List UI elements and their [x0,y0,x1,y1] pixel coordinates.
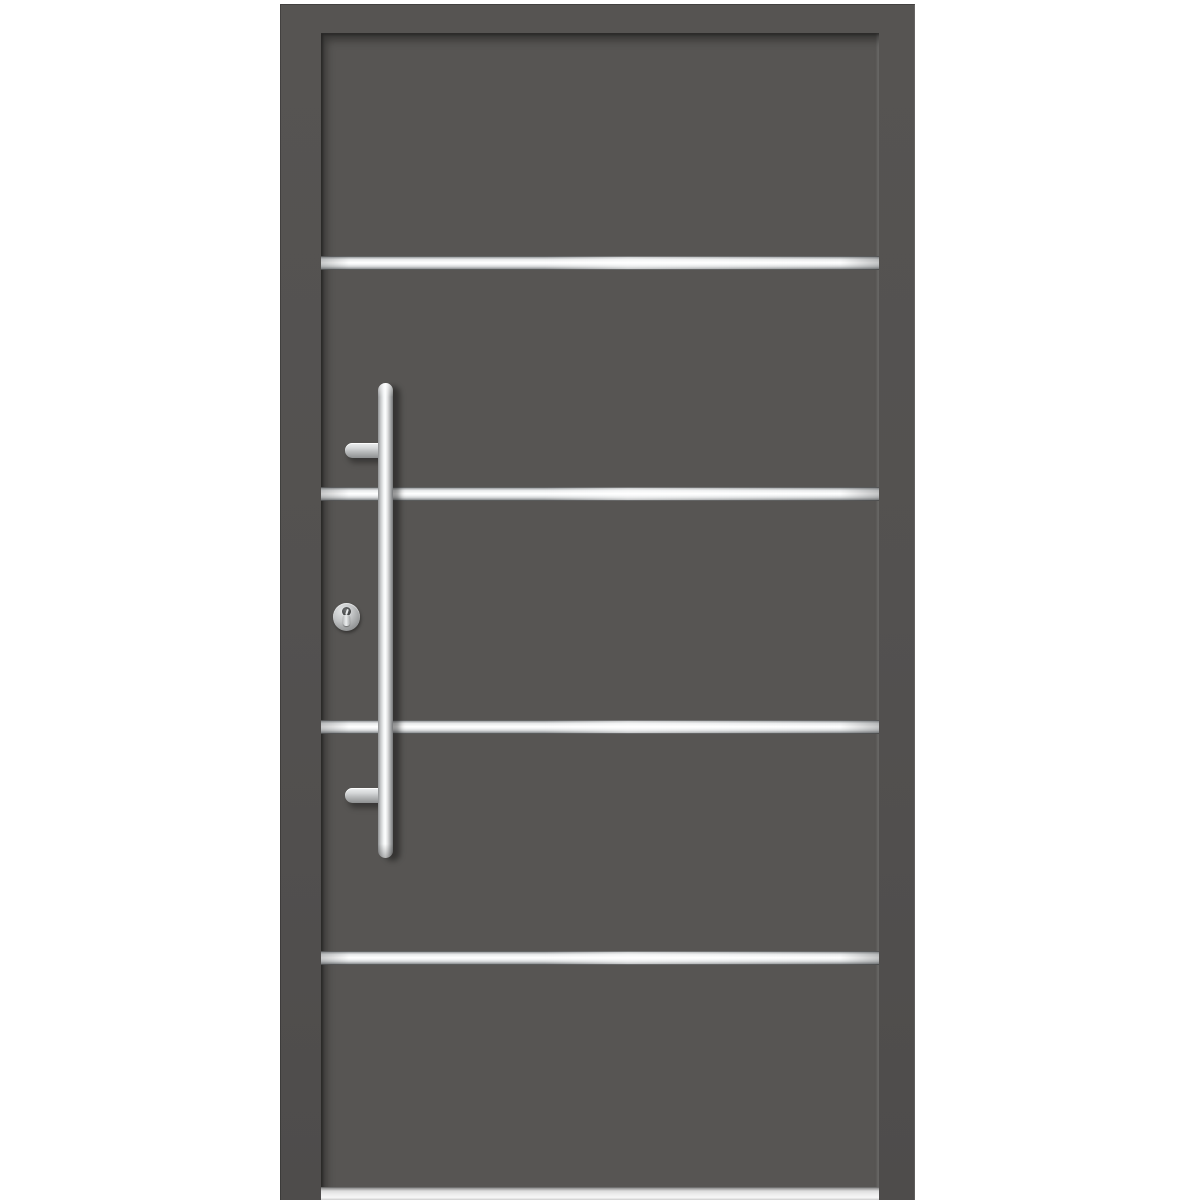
lock-cylinder [333,603,360,631]
door-panel [321,33,879,1200]
door [280,4,915,1200]
keyhole-stem [343,615,350,626]
handle-bar [378,383,393,858]
product-photo [0,0,1200,1200]
threshold-sill [321,1187,879,1200]
